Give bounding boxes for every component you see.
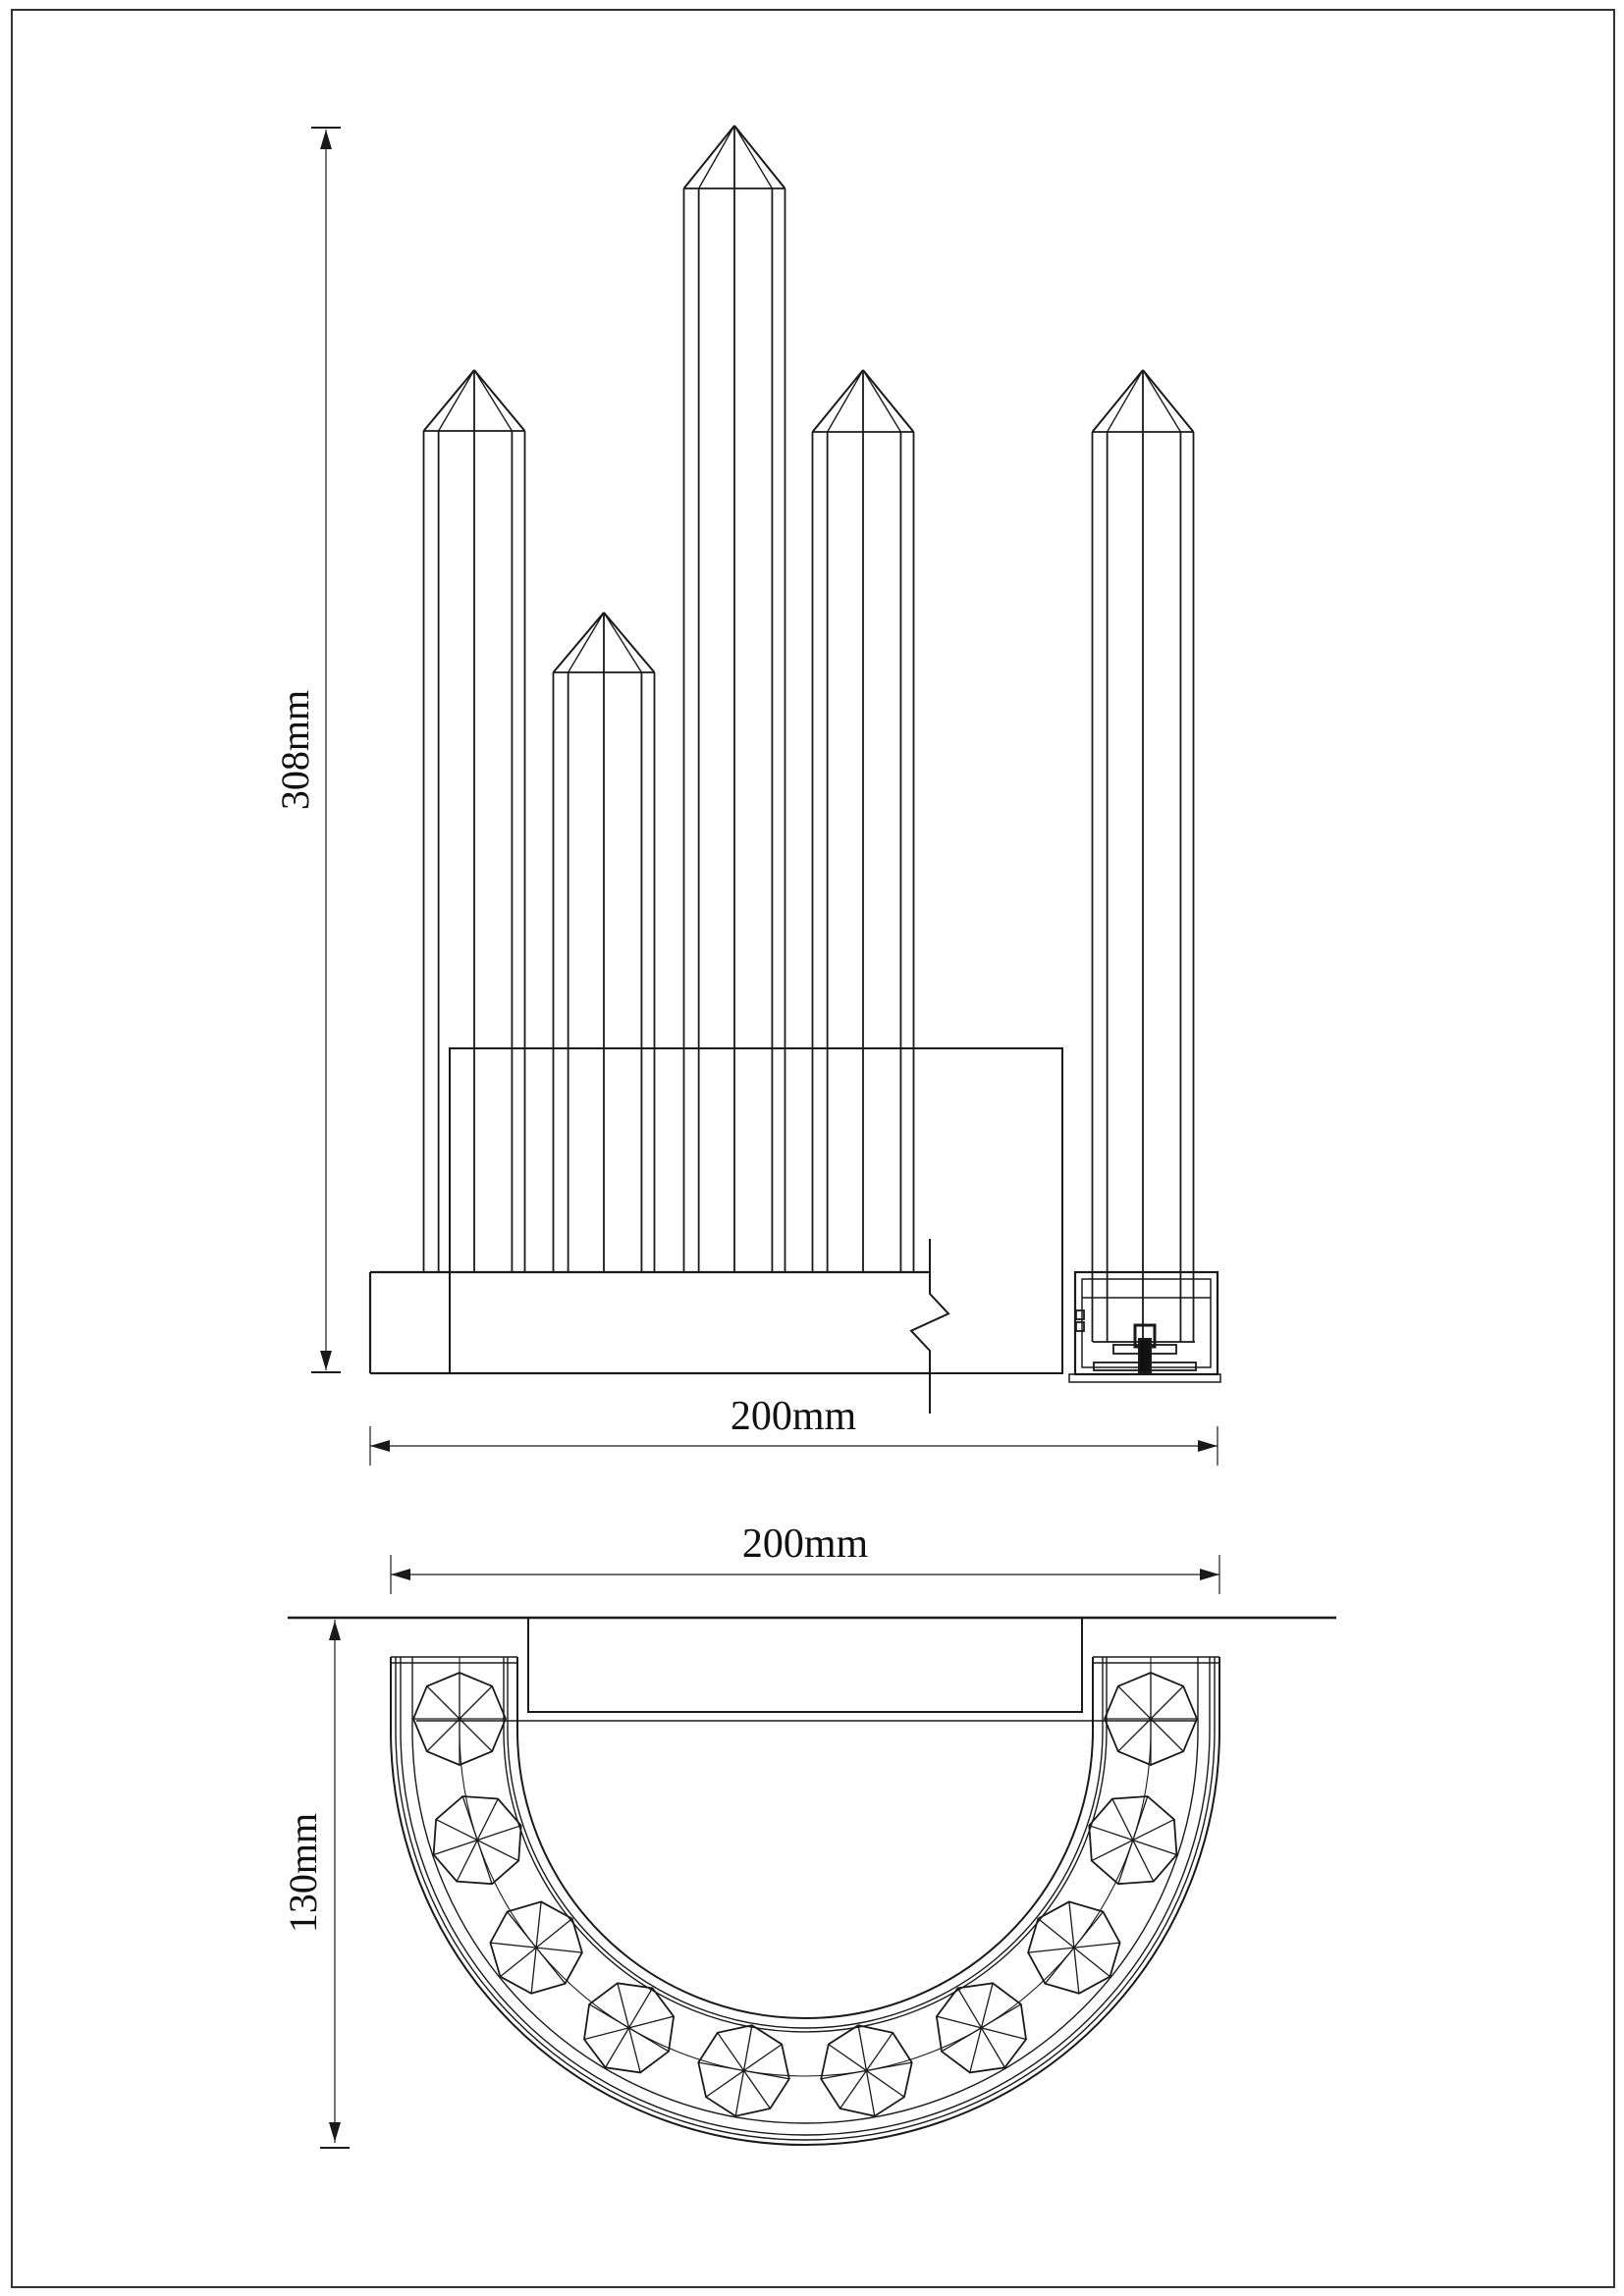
crystal-facet-spoke bbox=[629, 2016, 675, 2028]
crystal-facet-spoke bbox=[1151, 1686, 1183, 1719]
crystal-facet-spoke bbox=[744, 2025, 752, 2070]
crystal-facet-spoke bbox=[460, 1686, 492, 1719]
crystal-facet-spoke bbox=[942, 2028, 981, 2052]
socket-bolt-stem bbox=[1139, 1339, 1151, 1372]
crystal-facet-spoke bbox=[866, 2070, 904, 2097]
crystal-obelisk-2 bbox=[554, 613, 655, 1272]
obelisk-pyramid-edge bbox=[1143, 370, 1180, 432]
crystal-facet-spoke bbox=[698, 2062, 743, 2070]
plan-crystal-1 bbox=[413, 1673, 506, 1765]
dim-front-arrow-right bbox=[1198, 1440, 1218, 1452]
plan-crystal-9 bbox=[1089, 1796, 1176, 1884]
obelisk-pyramid-edge bbox=[863, 370, 914, 432]
crystal-facet-spoke bbox=[1069, 1901, 1074, 1948]
dim-front-arrow-left bbox=[370, 1440, 390, 1452]
crystal-facet-spoke bbox=[981, 2004, 1020, 2028]
crystal-facet-spoke bbox=[536, 1919, 572, 1949]
obelisk-pyramid-edge bbox=[474, 370, 512, 431]
obelisk-pyramid-edge bbox=[554, 613, 605, 672]
ring-inner-arc bbox=[504, 1657, 1107, 2032]
dim-depth-arrow-up bbox=[329, 1621, 341, 1640]
crystal-facet-spoke bbox=[1038, 1919, 1074, 1949]
plan-crystal-3 bbox=[490, 1901, 582, 1993]
crystal-facet-spoke bbox=[744, 2045, 783, 2071]
plan-crystal-5 bbox=[698, 2025, 789, 2116]
crystal-facet-spoke bbox=[829, 2045, 867, 2071]
back-panel bbox=[450, 1048, 1062, 1373]
crystal-facet-spoke bbox=[937, 2016, 982, 2028]
front-elevation-view bbox=[370, 126, 1220, 1414]
crystal-facet-spoke bbox=[866, 2070, 874, 2115]
obelisk-pyramid-edge bbox=[424, 370, 475, 431]
crystal-facet-spoke bbox=[427, 1686, 460, 1719]
obelisk-pyramid-edge bbox=[699, 126, 734, 188]
crystal-facet-spoke bbox=[821, 2070, 866, 2078]
crystal-facet-spoke bbox=[508, 1912, 537, 1949]
crystal-facet-spoke bbox=[866, 2033, 893, 2071]
obelisk-pyramid-edge bbox=[813, 370, 864, 432]
crystal-facet-spoke bbox=[536, 1948, 566, 1984]
ring-outer-arc bbox=[396, 1657, 1215, 2140]
crystal-facet-spoke bbox=[981, 1983, 993, 2028]
crystal-facet-spoke bbox=[744, 2070, 789, 2078]
crystal-facet-spoke bbox=[606, 2028, 629, 2067]
crystal-facet-spoke bbox=[1074, 1912, 1104, 1949]
obelisk-pyramid-edge bbox=[439, 370, 474, 431]
dim-height-arrow-up bbox=[320, 130, 332, 149]
obelisk-pyramid-edge bbox=[1108, 370, 1143, 432]
obelisk-pyramid-edge bbox=[684, 126, 735, 188]
crystal-facet-spoke bbox=[501, 1948, 537, 1977]
plan-crystal-2 bbox=[434, 1796, 521, 1884]
socket-clip bbox=[1076, 1322, 1084, 1331]
crystal-facet-spoke bbox=[1118, 1719, 1151, 1751]
dim-plan-arrow-left bbox=[391, 1569, 410, 1580]
dimension-label-plan-width: 200mm bbox=[742, 1522, 869, 1567]
crystal-facet-spoke bbox=[1074, 1948, 1079, 1994]
obelisk-pyramid-edge bbox=[604, 613, 655, 672]
crystal-facet-spoke bbox=[1028, 1948, 1074, 1952]
crystal-facet-spoke bbox=[718, 2033, 744, 2071]
crystal-facet-spoke bbox=[866, 2062, 911, 2070]
ring-outer-arc bbox=[401, 1657, 1210, 2135]
ring-outer-arc bbox=[412, 1657, 1198, 2123]
crystal-facet-spoke bbox=[584, 2028, 629, 2040]
crystal-facet-spoke bbox=[706, 2070, 744, 2097]
crystal-obelisk-3 bbox=[684, 126, 785, 1272]
crystal-facet-spoke bbox=[1118, 1686, 1151, 1719]
crystal-facet-spoke bbox=[957, 1988, 981, 2027]
obelisk-pyramid-edge bbox=[474, 370, 525, 431]
crystal-facet-spoke bbox=[970, 2028, 982, 2073]
crystal-facet-spoke bbox=[490, 1943, 536, 1948]
dimension-label-height: 308mm bbox=[273, 690, 317, 810]
break-line bbox=[911, 1239, 948, 1414]
dim-plan-arrow-right bbox=[1200, 1569, 1219, 1580]
socket-clip bbox=[1076, 1310, 1084, 1319]
plan-crystal-8 bbox=[1028, 1901, 1120, 1993]
obelisk-pyramid-edge bbox=[734, 126, 772, 188]
dim-height-arrow-down bbox=[320, 1351, 332, 1370]
obelisk-pyramid-edge bbox=[1093, 370, 1144, 432]
crystal-facet-spoke bbox=[1074, 1943, 1120, 1948]
plan-crystal-4 bbox=[584, 1983, 674, 2072]
crystal-facet-spoke bbox=[536, 1901, 541, 1948]
crystal-facet-spoke bbox=[1045, 1948, 1074, 1984]
crystal-track-line bbox=[460, 1657, 1151, 2076]
plan-crystal-6 bbox=[821, 2025, 912, 2116]
wall-plate bbox=[528, 1618, 1082, 1712]
dimension-label-front-width: 200mm bbox=[731, 1394, 857, 1439]
crystal-obelisk-5 bbox=[1093, 370, 1194, 1342]
crystal-facet-spoke bbox=[629, 2028, 641, 2073]
crystal-facet-spoke bbox=[981, 2028, 1004, 2067]
crystal-facet-spoke bbox=[858, 2025, 866, 2070]
obelisk-pyramid-edge bbox=[734, 126, 785, 188]
crystal-facet-spoke bbox=[427, 1719, 460, 1751]
plan-crystal-7 bbox=[937, 1983, 1026, 2072]
crystal-obelisk-1 bbox=[424, 370, 525, 1272]
obelisk-pyramid-edge bbox=[828, 370, 863, 432]
crystal-facet-spoke bbox=[536, 1948, 582, 1952]
obelisk-pyramid-edge bbox=[1143, 370, 1194, 432]
obelisk-pyramid-edge bbox=[604, 613, 641, 672]
crystal-facet-spoke bbox=[1074, 1948, 1110, 1977]
ring-outer-arc bbox=[391, 1657, 1219, 2145]
obelisk-pyramid-edge bbox=[568, 613, 604, 672]
lamp-box-under-plate bbox=[1069, 1374, 1220, 1382]
bottom-plan-view bbox=[288, 1618, 1336, 2145]
dim-depth-arrow-down bbox=[329, 2122, 341, 2142]
dimension-label-plan-depth: 130mm bbox=[281, 1813, 325, 1933]
obelisk-pyramid-edge bbox=[863, 370, 900, 432]
crystal-facet-spoke bbox=[460, 1719, 492, 1751]
crystal-facet-spoke bbox=[589, 2004, 628, 2028]
crystal-facet-spoke bbox=[629, 2028, 669, 2052]
crystal-facet-spoke bbox=[629, 1988, 653, 2027]
crystal-facet-spoke bbox=[981, 2028, 1026, 2040]
crystal-facet-spoke bbox=[618, 1983, 629, 2028]
technical-drawing-canvas: 308mm 200mm 200mm 130mm bbox=[0, 0, 1624, 2296]
crystal-obelisk-4 bbox=[813, 370, 914, 1272]
drawing-sheet: 308mm 200mm 200mm 130mm bbox=[0, 0, 1624, 2296]
crystal-facet-spoke bbox=[1151, 1719, 1183, 1751]
crystal-facet-spoke bbox=[744, 2070, 771, 2109]
crystal-facet-spoke bbox=[531, 1948, 536, 1994]
plan-crystal-10 bbox=[1105, 1673, 1197, 1765]
crystal-facet-spoke bbox=[735, 2070, 743, 2115]
crystal-facet-spoke bbox=[840, 2070, 867, 2109]
